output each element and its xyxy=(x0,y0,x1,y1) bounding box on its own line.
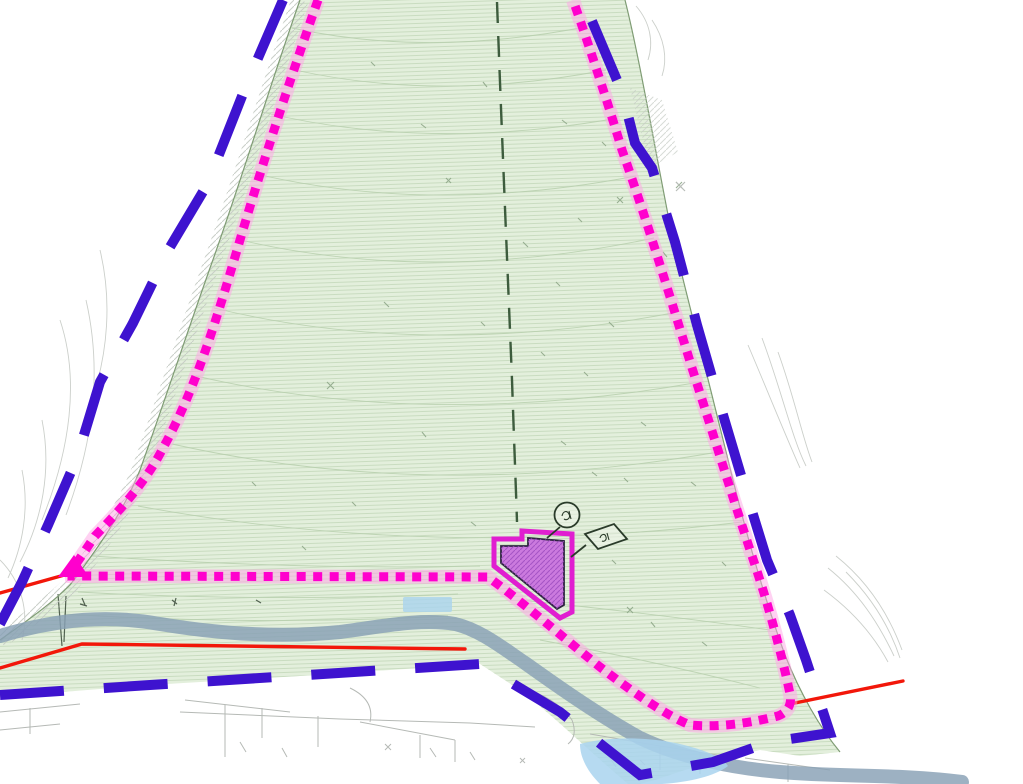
water-feature-rect xyxy=(403,597,452,612)
red-line-lower-right xyxy=(790,681,903,704)
site-plan-map[interactable] xyxy=(0,0,1023,784)
circle-marker xyxy=(555,503,580,528)
